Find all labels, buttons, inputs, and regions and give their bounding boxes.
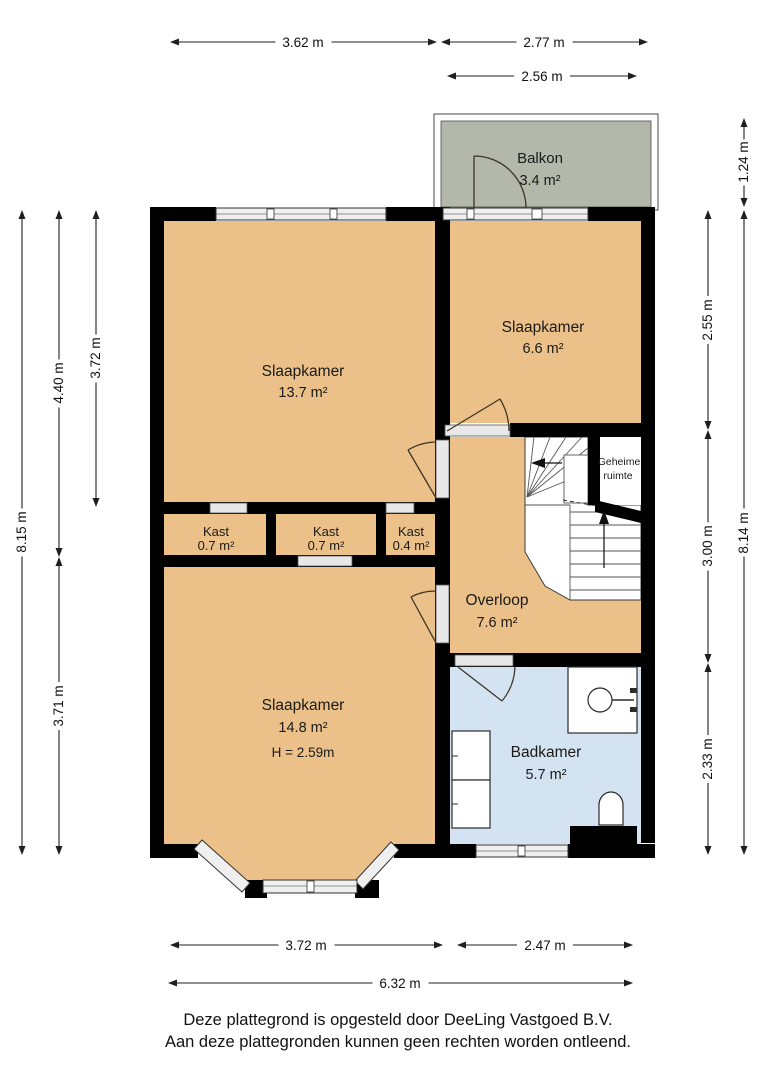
dim-left-lower-label: 3.71 m [51,685,66,726]
window-mullion-6 [307,881,314,892]
opening-kast-midden [298,556,352,566]
shower-mixer-top [630,688,637,693]
area-slaapkamer-13-7: 13.7 m² [278,385,327,401]
floorplan-page: Balkon 3.4 m² [0,0,764,1080]
window-mullion-5 [518,846,525,856]
wall-bottom-middle [394,844,437,858]
wall-divider-vertical [435,207,450,844]
wall-bottom-badkamer-right [568,844,655,858]
floorplan-drawing: Balkon 3.4 m² [0,0,764,1080]
wall-bottom-left [150,844,198,858]
dim-balcony-width-label: 2.56 m [521,69,562,84]
label-slaapkamer-6-6: Slaapkamer [502,319,585,336]
dim-top-right-label: 2.77 m [523,35,564,50]
dim-right-lower-label: 2.33 m [700,738,715,779]
window-mullion-1 [267,209,274,219]
dim-bottom-total-label: 6.32 m [379,976,420,991]
dim-right-upper-label: 2.55 m [700,299,715,340]
wall-top-middle [386,207,443,221]
dim-right-total-label: 8.14 m [736,512,751,553]
opening-slaapkamer-13-7 [436,440,449,498]
dim-right-middle-label: 3.00 m [700,525,715,566]
stair-newel [564,455,588,503]
label-badkamer: Badkamer [511,744,582,761]
label-overloop: Overloop [466,592,529,609]
shower-mixer-bottom [630,707,637,712]
opening-kast-rechts [386,503,414,513]
dim-left-total-label: 8.15 m [14,511,29,552]
dim-bottom-left-label: 3.72 m [285,938,326,953]
dim-left-upper-inner-label: 3.72 m [88,337,103,378]
floor-slaapkamer-13-7 [164,221,435,502]
label-geheime-ruimte-1: Geheime [598,456,641,468]
dim-balcony-depth-label: 1.24 m [736,141,751,182]
toilet-icon [599,792,623,825]
window-mullion-3 [467,209,474,219]
balcony-area: 3.4 m² [519,173,560,189]
area-slaapkamer-6-6: 6.6 m² [522,341,563,357]
area-kast-rechts: 0.4 m² [393,538,431,553]
opening-badkamer [455,655,513,666]
label-slaapkamer-14-8: Slaapkamer [262,697,345,714]
balcony-label: Balkon [517,150,563,167]
area-badkamer: 5.7 m² [525,767,566,783]
label-kast-links: Kast [203,524,229,539]
area-kast-midden: 0.7 m² [308,538,346,553]
wall-right [641,207,655,843]
area-kast-links: 0.7 m² [198,538,236,553]
dim-top-left-label: 3.62 m [282,35,323,50]
footer-line-1: Deze plattegrond is opgesteld door DeeLi… [183,1011,612,1029]
dim-left-upper-label: 4.40 m [51,362,66,403]
wall-bottom-badkamer-left [437,844,476,858]
wall-kast-divider-2 [376,502,386,567]
label-kast-midden: Kast [313,524,339,539]
window-mullion-2 [330,209,337,219]
opening-slaapkamer-14-8 [436,585,449,643]
area-overloop: 7.6 m² [476,615,517,631]
wall-slaapkamer-6-6-bottom [510,423,641,437]
label-kast-rechts: Kast [398,524,424,539]
wall-kast-divider-1 [266,502,276,567]
area-slaapkamer-14-8: 14.8 m² [278,720,327,736]
window-mullion-4 [532,209,542,219]
label-geheime-ruimte-2: ruimte [603,470,632,482]
balcony: Balkon 3.4 m² [434,114,658,210]
dim-bottom-right-label: 2.47 m [524,938,565,953]
footer-line-2: Aan deze plattegronden kunnen geen recht… [165,1033,631,1051]
wall-left [150,207,164,858]
label-slaapkamer-13-7: Slaapkamer [262,363,345,380]
wall-toilet-stub [570,826,637,844]
height-slaapkamer-14-8: H = 2.59m [272,745,335,760]
opening-kast-links [210,503,247,513]
